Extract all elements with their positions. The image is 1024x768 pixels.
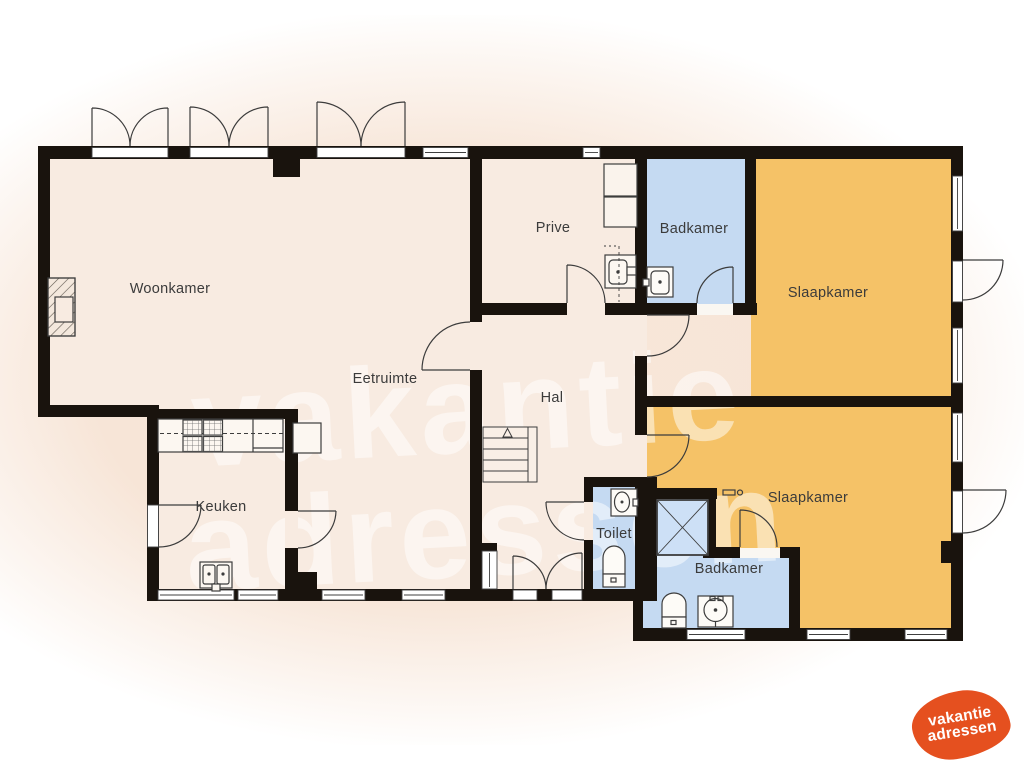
room-label-slaapkamer-beneden: Slaapkamer xyxy=(768,490,848,506)
door-threshold xyxy=(552,590,582,600)
door-arc xyxy=(92,108,130,146)
wall xyxy=(470,370,482,601)
door-opening xyxy=(470,322,482,370)
toilet-icon xyxy=(662,593,686,628)
shower-icon xyxy=(657,500,708,555)
stairs-icon xyxy=(483,427,537,482)
wall xyxy=(635,356,647,435)
wall xyxy=(645,488,717,499)
door-opening xyxy=(635,435,647,477)
washbasin-icon xyxy=(698,596,733,627)
door-opening xyxy=(584,502,593,540)
door-threshold xyxy=(953,261,963,302)
room-label-eetruimte: Eetruimte xyxy=(353,371,418,387)
room-label-toilet: Toilet xyxy=(596,526,632,542)
door-opening xyxy=(567,304,605,315)
wall xyxy=(273,158,300,177)
door-threshold xyxy=(317,148,405,158)
floorplan-page: vakantie adressen xyxy=(0,0,1024,768)
wall xyxy=(941,541,963,563)
floor-slaapkamer-boven xyxy=(751,152,958,404)
wall xyxy=(470,303,567,315)
door-arc xyxy=(361,102,405,146)
wall xyxy=(470,146,482,322)
door-opening xyxy=(740,548,780,558)
wall xyxy=(708,499,716,547)
room-label-badkamer-boven: Badkamer xyxy=(660,221,729,237)
door-arc xyxy=(963,260,1003,300)
washbasin-icon xyxy=(611,489,638,516)
door-arc xyxy=(229,107,268,146)
wall xyxy=(633,594,643,641)
room-label-hal: Hal xyxy=(541,390,564,406)
cabinet-icon xyxy=(293,423,321,453)
room-label-slaapkamer-boven: Slaapkamer xyxy=(788,285,868,301)
fireplace-icon xyxy=(48,278,75,336)
wall xyxy=(635,396,963,407)
wall xyxy=(38,146,963,159)
door-arc xyxy=(130,108,168,146)
door-arc xyxy=(317,102,361,146)
door-opening xyxy=(635,315,647,356)
wall xyxy=(147,409,298,419)
wall xyxy=(38,405,159,417)
door-opening xyxy=(285,511,298,548)
door-arc xyxy=(963,490,1006,533)
floorplan-drawing: vakantie adressen xyxy=(0,0,1024,768)
room-label-badkamer-beneden: Badkamer xyxy=(695,561,764,577)
wall xyxy=(635,303,697,315)
room-label-prive: Prive xyxy=(536,220,571,236)
door-arc xyxy=(190,107,229,146)
door-threshold xyxy=(190,148,268,158)
door-threshold xyxy=(92,148,168,158)
vakantieadressen-logo-text: vakantie adressen xyxy=(924,705,997,745)
door-threshold xyxy=(953,491,963,533)
room-label-keuken: Keuken xyxy=(196,499,247,515)
wall xyxy=(482,543,497,551)
wall xyxy=(745,146,756,315)
door-threshold xyxy=(148,505,159,547)
wall xyxy=(147,405,159,601)
wall xyxy=(584,477,657,487)
toilet-icon xyxy=(603,546,625,587)
wall xyxy=(789,547,800,641)
door-opening xyxy=(697,304,733,315)
washbasin-icon xyxy=(643,267,673,297)
room-label-woonkamer: Woonkamer xyxy=(130,281,211,297)
prive-cabinets xyxy=(604,164,637,227)
kitchen-sink-icon xyxy=(200,562,232,591)
door-threshold xyxy=(513,590,537,600)
